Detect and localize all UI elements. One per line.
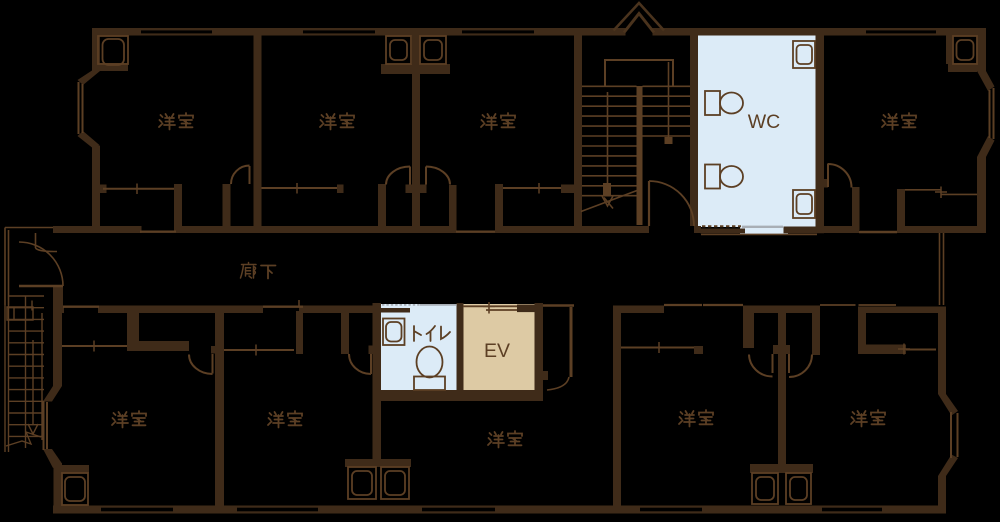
svg-text:WC: WC [748, 111, 781, 133]
svg-text:EV: EV [484, 340, 510, 362]
